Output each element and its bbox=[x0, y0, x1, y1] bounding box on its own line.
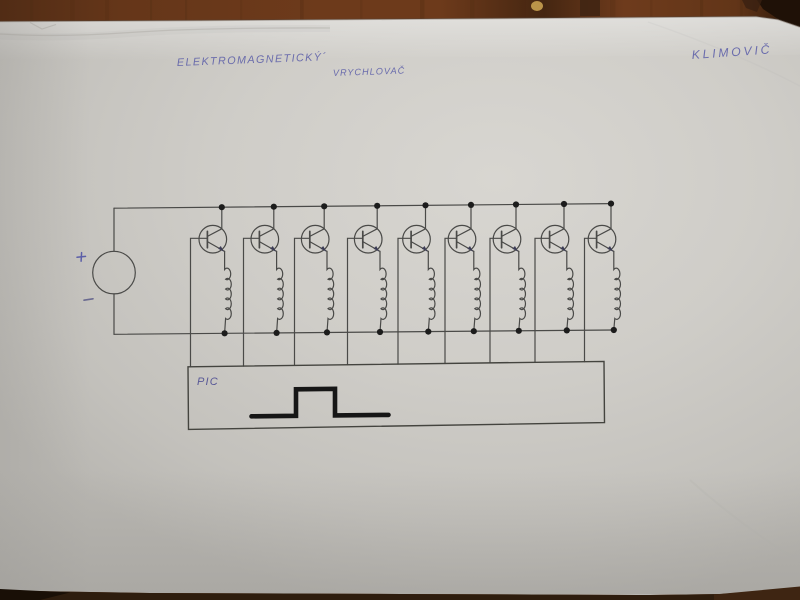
svg-text:PIC: PIC bbox=[197, 376, 219, 388]
